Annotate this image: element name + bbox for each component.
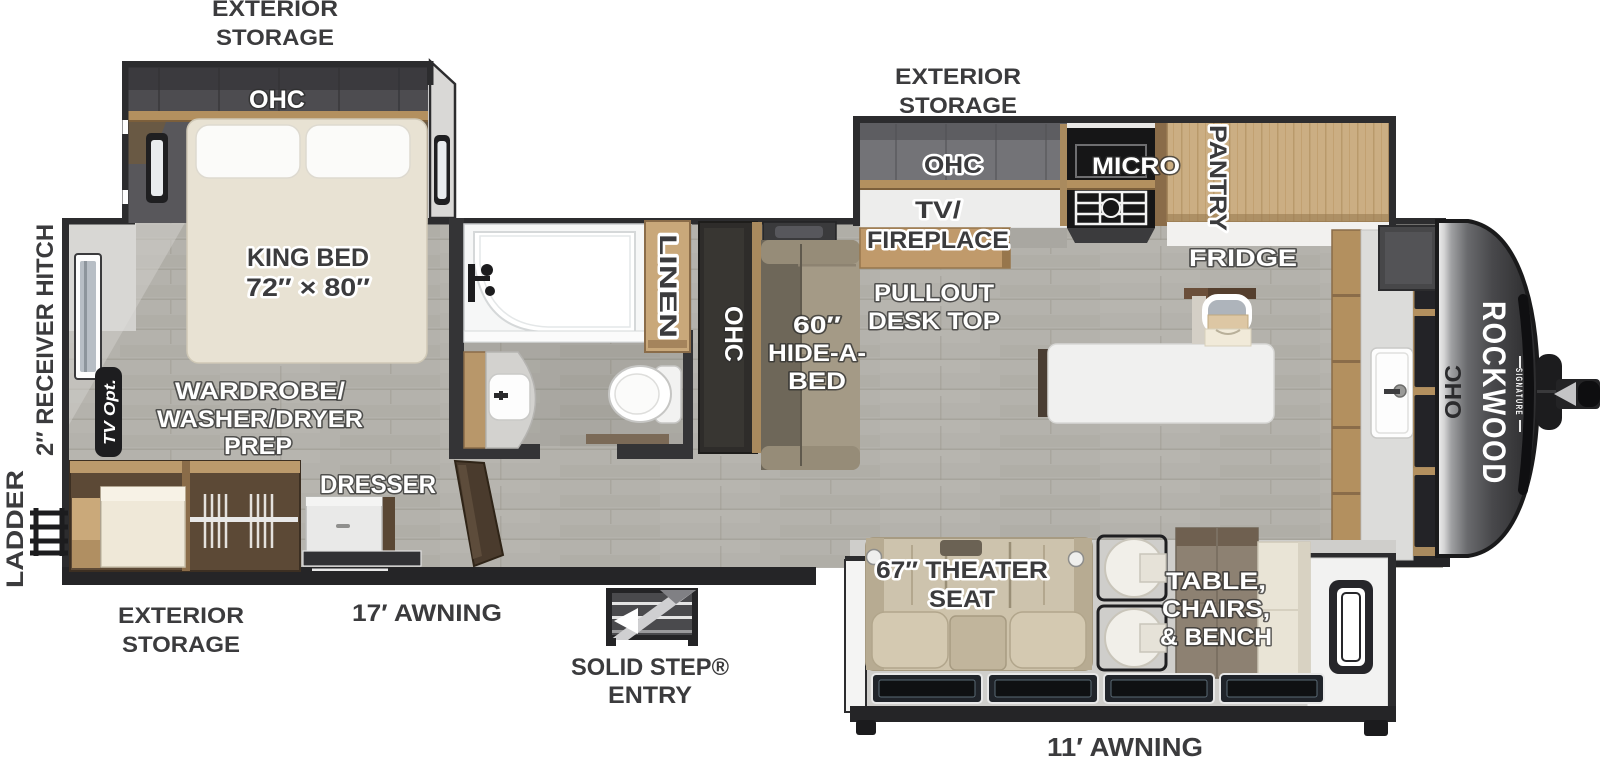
svg-text:EXTERIOR: EXTERIOR — [212, 0, 338, 21]
svg-text:OHC: OHC — [719, 306, 747, 362]
svg-text:CHAIRS,: CHAIRS, — [1162, 596, 1270, 623]
svg-text:67″ THEATER: 67″ THEATER — [876, 557, 1048, 584]
svg-text:LINEN: LINEN — [654, 234, 681, 338]
svg-text:BED: BED — [788, 368, 846, 395]
svg-text:72″ × 80″: 72″ × 80″ — [246, 274, 370, 302]
svg-text:& BENCH: & BENCH — [1160, 624, 1272, 651]
svg-text:STORAGE: STORAGE — [122, 632, 240, 657]
svg-text:17′ AWNING: 17′ AWNING — [352, 600, 502, 627]
svg-text:11′ AWNING: 11′ AWNING — [1047, 732, 1203, 758]
svg-text:TABLE,: TABLE, — [1166, 568, 1266, 595]
svg-text:ENTRY: ENTRY — [608, 682, 692, 709]
svg-text:DESK TOP: DESK TOP — [868, 308, 1000, 335]
svg-text:WASHER/DRYER: WASHER/DRYER — [157, 406, 363, 433]
svg-text:OHC: OHC — [924, 152, 982, 179]
svg-text:FIREPLACE: FIREPLACE — [867, 227, 1009, 254]
svg-text:2″ RECEIVER HITCH: 2″ RECEIVER HITCH — [32, 224, 59, 456]
svg-text:EXTERIOR: EXTERIOR — [118, 603, 244, 628]
svg-text:HIDE-A-: HIDE-A- — [768, 340, 866, 367]
svg-text:PREP: PREP — [224, 433, 292, 460]
svg-text:MICRO: MICRO — [1092, 153, 1180, 180]
svg-text:OHC: OHC — [1440, 365, 1466, 419]
svg-text:SIGNATURE: SIGNATURE — [1514, 368, 1524, 416]
svg-text:ROCKWOOD: ROCKWOOD — [1476, 301, 1512, 485]
svg-text:SOLID STEP®: SOLID STEP® — [571, 654, 729, 681]
svg-text:SEAT: SEAT — [929, 586, 995, 613]
svg-text:STORAGE: STORAGE — [216, 25, 334, 50]
svg-text:60″: 60″ — [793, 312, 842, 339]
svg-text:TV Opt.: TV Opt. — [102, 379, 119, 445]
svg-text:EXTERIOR: EXTERIOR — [895, 64, 1021, 89]
svg-text:STORAGE: STORAGE — [899, 93, 1017, 118]
svg-text:TV/: TV/ — [915, 197, 961, 224]
svg-text:WARDROBE/: WARDROBE/ — [175, 378, 345, 405]
svg-text:DRESSER: DRESSER — [320, 471, 436, 499]
svg-text:FRIDGE: FRIDGE — [1189, 245, 1297, 272]
svg-text:OHC: OHC — [249, 86, 305, 114]
svg-text:PANTRY: PANTRY — [1204, 125, 1231, 231]
svg-text:PULLOUT: PULLOUT — [874, 280, 994, 307]
svg-text:LADDER: LADDER — [2, 470, 29, 588]
svg-text:KING BED: KING BED — [247, 244, 369, 272]
